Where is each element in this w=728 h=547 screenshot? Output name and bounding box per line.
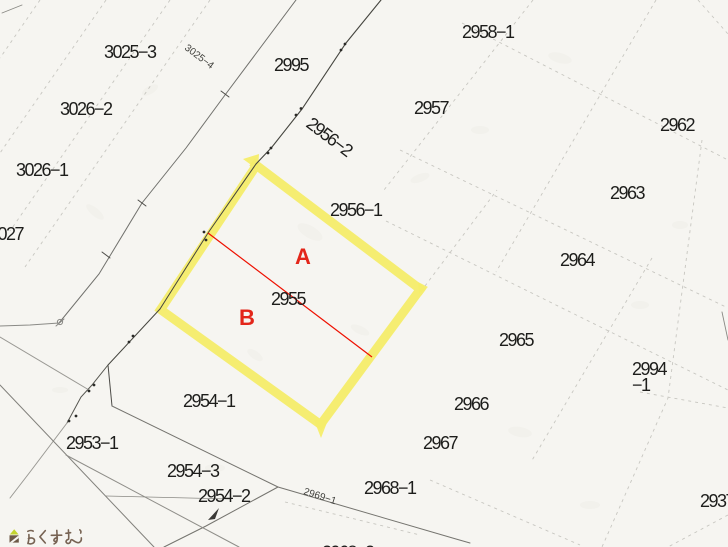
- svg-text:−1: −1: [632, 375, 651, 395]
- svg-text:3027: 3027: [0, 224, 25, 244]
- svg-text:2968−2: 2968−2: [322, 543, 375, 547]
- svg-text:2958−1: 2958−1: [462, 22, 515, 42]
- svg-text:2962: 2962: [660, 115, 696, 135]
- svg-text:2956−1: 2956−1: [330, 200, 383, 220]
- svg-text:2963: 2963: [610, 183, 646, 203]
- svg-text:B: B: [239, 305, 255, 330]
- svg-text:2954−1: 2954−1: [183, 391, 236, 411]
- svg-text:3025−3: 3025−3: [104, 42, 157, 62]
- svg-text:2954−2: 2954−2: [198, 486, 251, 506]
- svg-text:3026−1: 3026−1: [16, 160, 69, 180]
- svg-text:A: A: [295, 244, 311, 269]
- svg-text:2995: 2995: [274, 55, 310, 75]
- svg-text:2954−3: 2954−3: [167, 461, 220, 481]
- svg-text:2967: 2967: [423, 433, 459, 453]
- svg-text:2937: 2937: [700, 491, 728, 511]
- svg-text:2964: 2964: [560, 250, 596, 270]
- svg-text:2966: 2966: [454, 394, 490, 414]
- svg-text:2955: 2955: [271, 289, 307, 309]
- svg-text:2968−1: 2968−1: [364, 478, 417, 498]
- svg-text:2953−1: 2953−1: [66, 433, 119, 453]
- svg-text:2957: 2957: [414, 98, 450, 118]
- svg-text:2965: 2965: [499, 330, 535, 350]
- svg-text:3026−2: 3026−2: [60, 99, 113, 119]
